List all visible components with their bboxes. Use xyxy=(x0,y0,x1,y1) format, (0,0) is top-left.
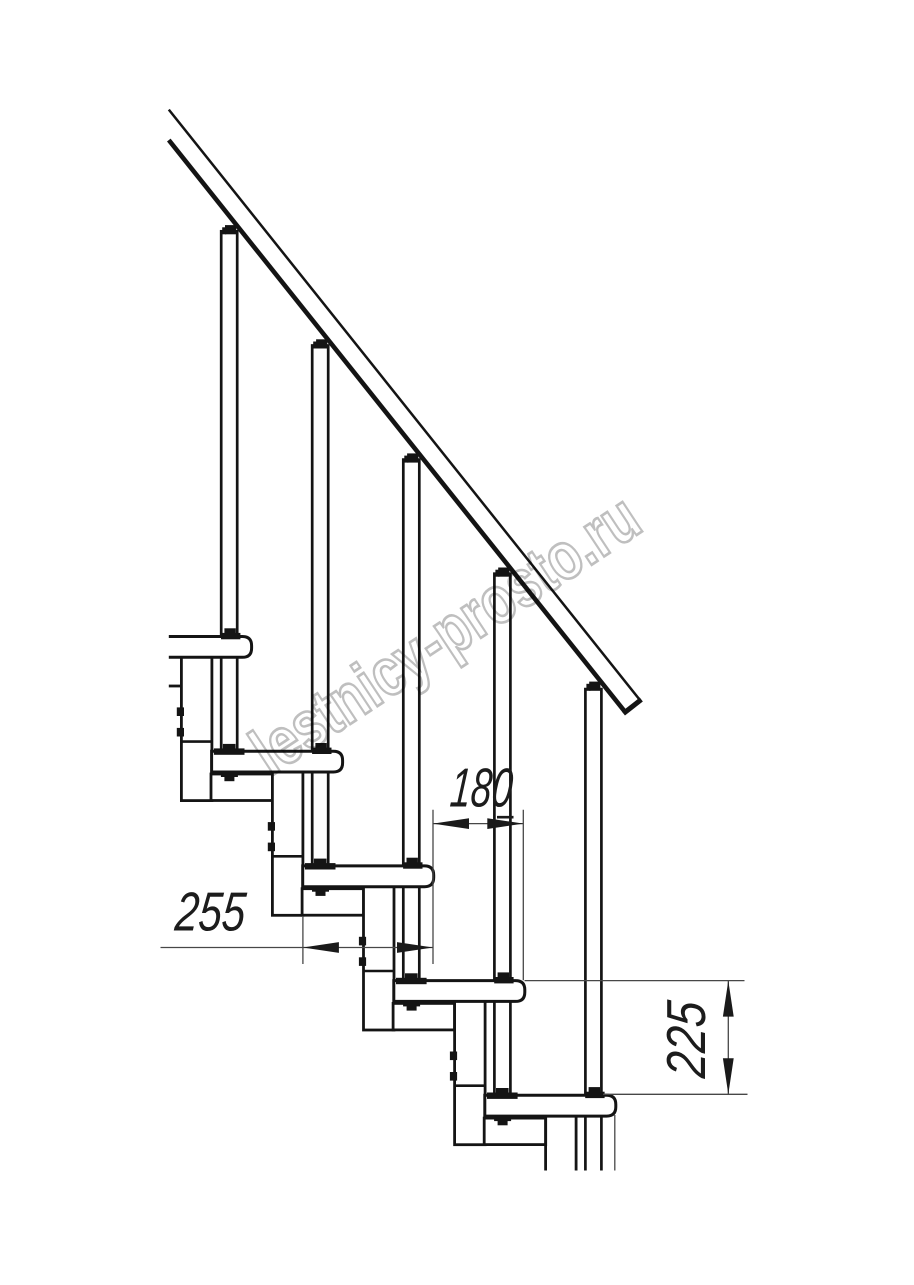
svg-text:180: 180 xyxy=(448,757,516,819)
svg-text:225: 225 xyxy=(655,998,717,1081)
svg-text:255: 255 xyxy=(172,881,248,943)
